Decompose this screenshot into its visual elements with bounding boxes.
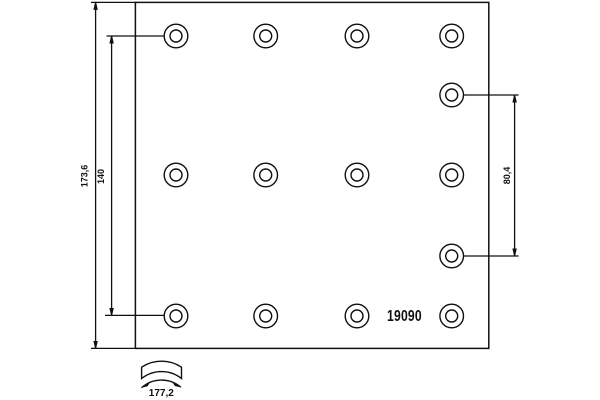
svg-text:177,2: 177,2 (149, 388, 174, 399)
svg-text:140: 140 (96, 169, 106, 184)
svg-text:19090: 19090 (387, 308, 422, 325)
svg-text:80,4: 80,4 (502, 167, 512, 185)
svg-text:173,6: 173,6 (80, 165, 90, 188)
